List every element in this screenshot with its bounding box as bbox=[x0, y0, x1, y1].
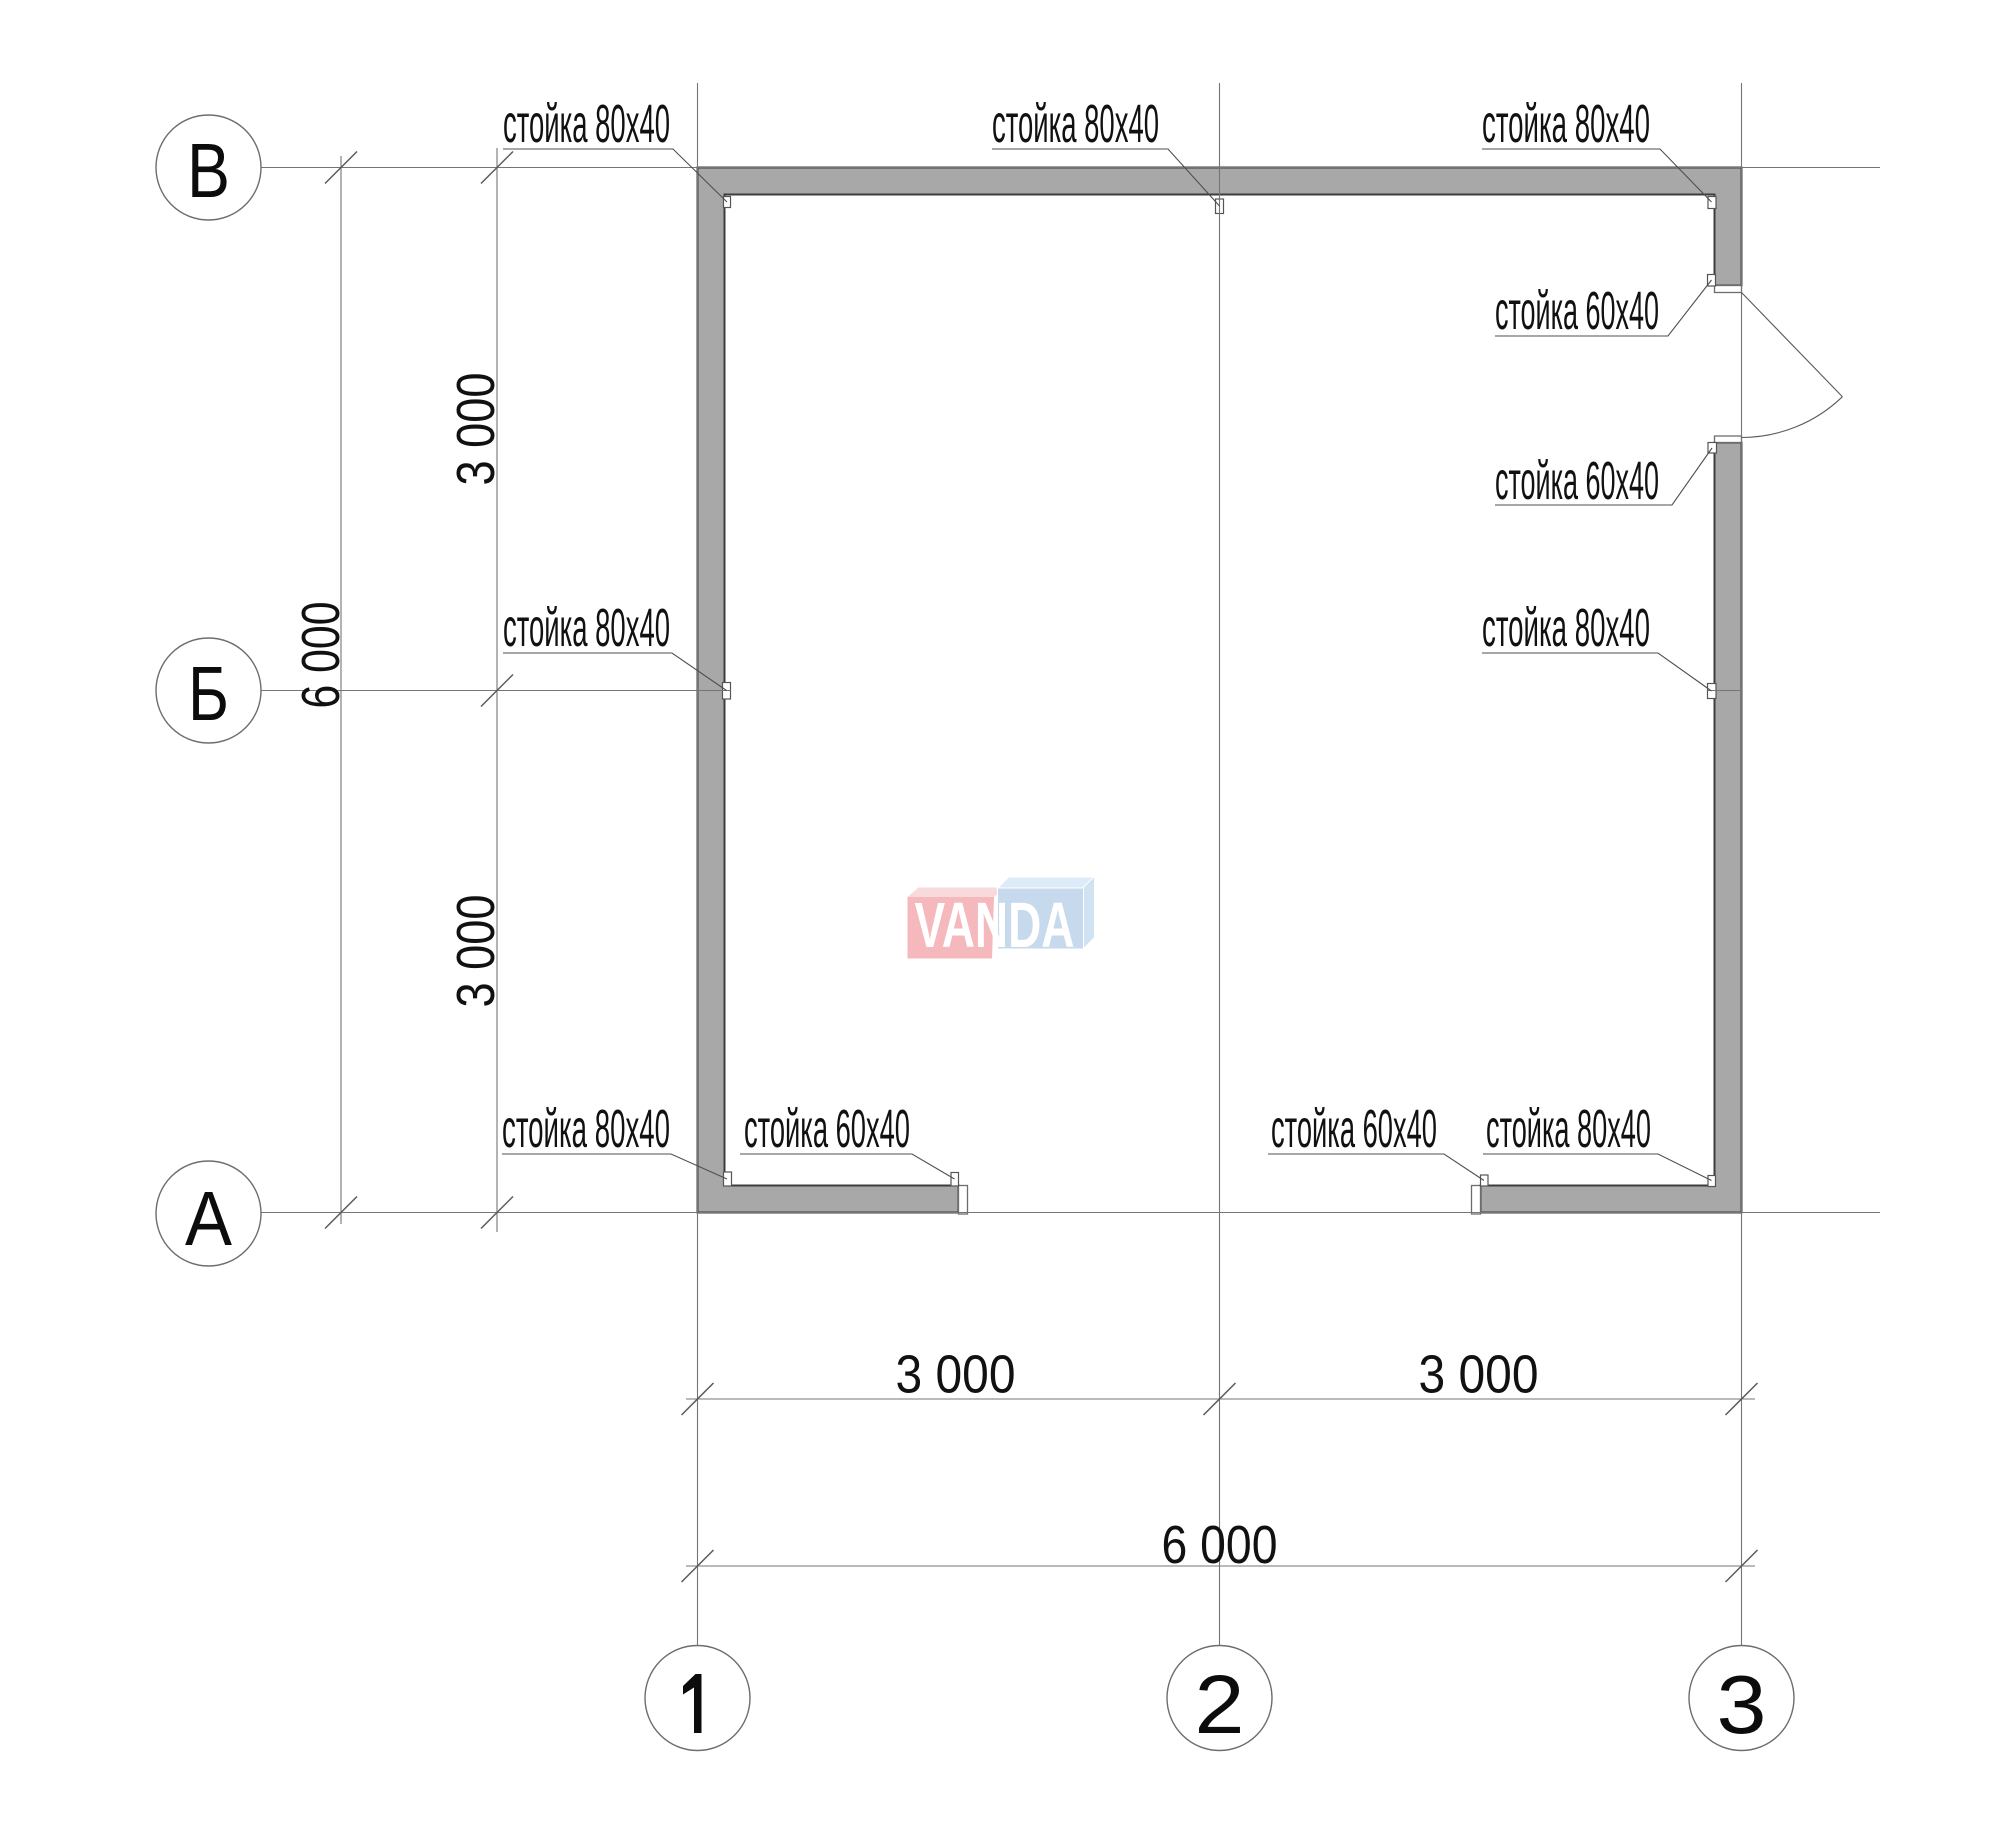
svg-text:стойка 80х40: стойка 80х40 bbox=[992, 94, 1159, 154]
svg-text:стойка 60х40: стойка 60х40 bbox=[1495, 451, 1659, 511]
svg-text:Б: Б bbox=[188, 651, 229, 737]
svg-text:А: А bbox=[185, 1176, 233, 1262]
svg-text:В: В bbox=[187, 128, 230, 214]
svg-text:стойка 60х40: стойка 60х40 bbox=[1271, 1099, 1437, 1159]
svg-text:3 000: 3 000 bbox=[896, 1345, 1016, 1405]
svg-text:3 000: 3 000 bbox=[446, 373, 506, 486]
svg-text:3 000: 3 000 bbox=[1419, 1345, 1539, 1405]
svg-text:стойка 60х40: стойка 60х40 bbox=[744, 1099, 910, 1159]
svg-text:3: 3 bbox=[1717, 1658, 1767, 1751]
svg-text:стойка 60х40: стойка 60х40 bbox=[1495, 281, 1659, 341]
svg-text:стойка 80х40: стойка 80х40 bbox=[1482, 94, 1650, 154]
svg-text:стойка 80х40: стойка 80х40 bbox=[1482, 598, 1650, 658]
svg-text:стойка 80х40: стойка 80х40 bbox=[503, 598, 670, 658]
svg-text:6 000: 6 000 bbox=[291, 602, 351, 709]
svg-text:6 000: 6 000 bbox=[1162, 1515, 1278, 1575]
svg-text:стойка 80х40: стойка 80х40 bbox=[503, 94, 670, 154]
svg-text:стойка 80х40: стойка 80х40 bbox=[502, 1099, 670, 1159]
svg-text:2: 2 bbox=[1195, 1658, 1245, 1751]
svg-text:3 000: 3 000 bbox=[446, 895, 506, 1008]
svg-text:стойка 80х40: стойка 80х40 bbox=[1486, 1099, 1651, 1159]
svg-text:VANDA: VANDA bbox=[915, 889, 1075, 961]
